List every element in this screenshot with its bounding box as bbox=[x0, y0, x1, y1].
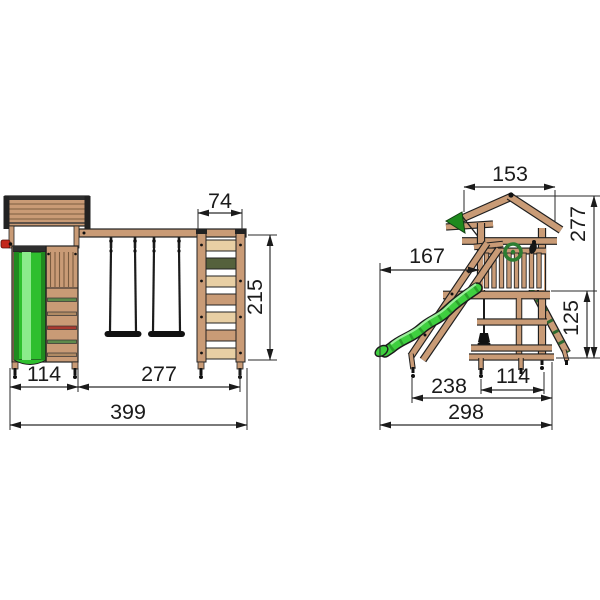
dimension-frame-height: 215 bbox=[243, 235, 277, 360]
dim-label-swing-section-width: 277 bbox=[141, 362, 177, 386]
diagram-canvas: 74 215 114 277 399 bbox=[0, 0, 600, 600]
swing-right bbox=[148, 237, 185, 337]
slide-front bbox=[14, 252, 46, 365]
climbing-frame bbox=[196, 229, 246, 379]
front-view: 74 215 114 277 399 bbox=[1, 189, 277, 430]
dim-label-climbing-frame-width: 74 bbox=[208, 189, 232, 213]
playground-dimension-diagram: 74 215 114 277 399 bbox=[0, 0, 600, 600]
dimension-front-bottom: 114 277 399 bbox=[10, 362, 247, 430]
dim-label-total-depth: 298 bbox=[448, 400, 484, 424]
dim-label-platform-height: 125 bbox=[559, 300, 583, 336]
swing-left bbox=[105, 237, 142, 337]
dim-label-total-width: 399 bbox=[110, 400, 146, 424]
tower-roof bbox=[4, 196, 91, 229]
dim-label-tower-width: 114 bbox=[27, 362, 61, 386]
swing-beam bbox=[79, 229, 246, 237]
dim-label-tower-base-depth: 114 bbox=[496, 364, 530, 388]
dim-label-total-height: 277 bbox=[566, 206, 590, 242]
dim-label-slide-reach: 167 bbox=[409, 244, 445, 268]
side-view: 153 277 125 167 114 bbox=[373, 162, 600, 430]
dimension-side-bottom: 114 238 298 bbox=[380, 362, 552, 430]
slide-side bbox=[373, 284, 477, 359]
dimension-climbing-frame-width: 74 bbox=[198, 189, 242, 230]
tower-post-right bbox=[74, 226, 79, 248]
dimension-platform-height: 125 bbox=[551, 291, 597, 358]
tower-body bbox=[12, 246, 78, 365]
dim-label-base-depth-inner: 238 bbox=[431, 374, 467, 398]
dim-label-roof-depth: 153 bbox=[492, 162, 528, 186]
dim-label-frame-height: 215 bbox=[243, 279, 267, 315]
